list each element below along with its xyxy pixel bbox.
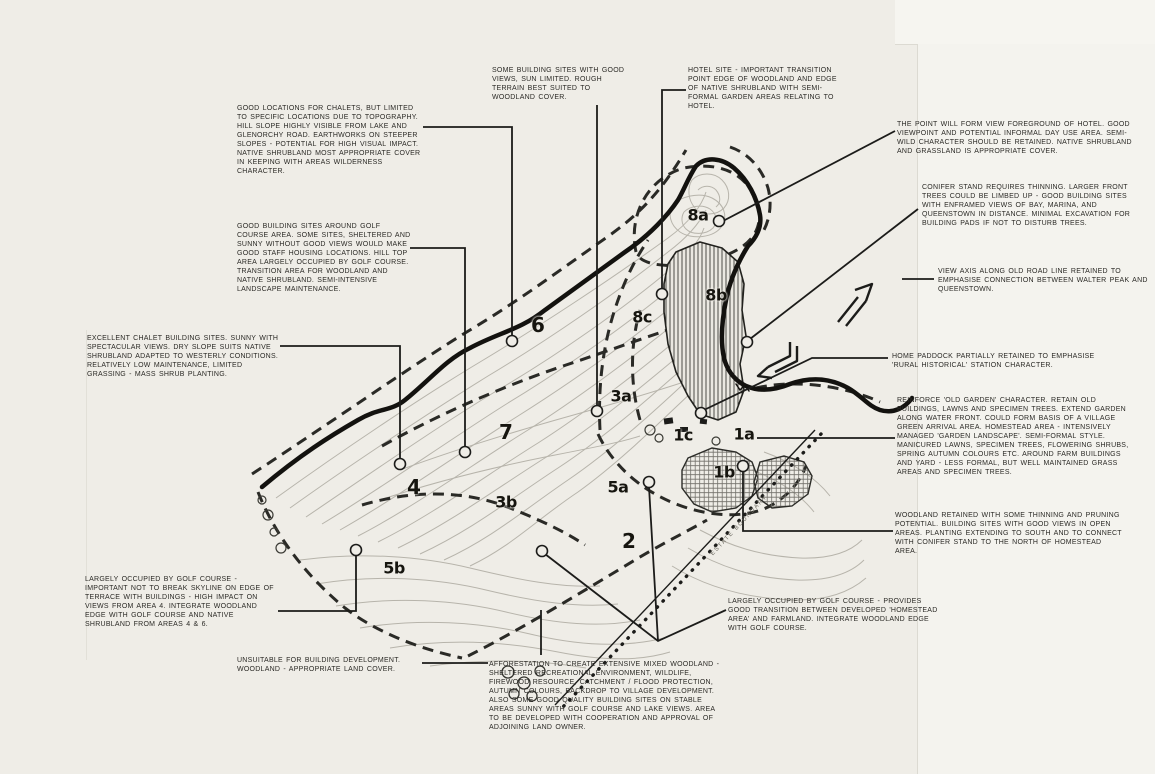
note-some-building-sites: SOME BUILDING SITES WITH GOOD VIEWS, SUN… [492,66,630,102]
zone-label-8a: 8a [688,206,709,225]
zone-label-7: 7 [499,420,513,444]
arrow-to-walter-peak [758,342,797,378]
zone-label-6: 6 [531,313,545,337]
note-golf-course-sites: GOOD BUILDING SITES AROUND GOLF COURSE A… [237,222,413,294]
note-golf-transition: LARGELY OCCUPIED BY GOLF COURSE - PROVID… [728,597,944,633]
map-drawing [0,0,1155,774]
note-view-axis: VIEW AXIS ALONG OLD ROAD LINE RETAINED T… [938,267,1150,294]
zone-label-1b: 1b [713,463,735,482]
note-excellent-chalet-sites: EXCELLENT CHALET BUILDING SITES. SUNNY W… [87,334,283,379]
note-afforestation: AFFORESTATION TO CREATE EXTENSIVE MIXED … [489,660,727,732]
note-unsuitable-woodland: UNSUITABLE FOR BUILDING DEVELOPMENT. WOO… [237,656,421,674]
zone-label-1c: 1c [673,426,693,445]
zone-label-8b: 8b [705,286,727,305]
note-hotel-site: HOTEL SITE - IMPORTANT TRANSITION POINT … [688,66,850,111]
zone-label-1a: 1a [734,425,755,444]
zone-label-3b: 3b [495,493,517,512]
zone-label-4: 4 [407,475,421,499]
zone-label-5b: 5b [383,559,405,578]
note-skyline-golf-course: LARGELY OCCUPIED BY GOLF COURSE - IMPORT… [85,575,281,629]
shore-scrub [258,496,286,553]
note-chalet-locations: GOOD LOCATIONS FOR CHALETS, BUT LIMITED … [237,104,423,176]
zone-label-5a: 5a [608,478,629,497]
note-the-point: THE POINT WILL FORM VIEW FOREGROUND OF H… [897,120,1135,156]
zone-label-2: 2 [622,529,636,553]
site-analysis-plan: 6 7 4 2 3a 3b 5a 5b 8a 8b 8c 1a 1b 1c ES… [0,0,1155,774]
note-home-paddock: HOME PADDOCK PARTIALLY RETAINED TO EMPHA… [892,352,1122,370]
zone-label-8c: 8c [632,308,652,327]
zone-label-3a: 3a [611,387,632,406]
note-old-garden-homestead: REINFORCE 'OLD GARDEN' CHARACTER. RETAIN… [897,396,1139,477]
note-conifer-stand: CONIFER STAND REQUIRES THINNING. LARGER … [922,183,1144,228]
note-woodland-retained: WOODLAND RETAINED WITH SOME THINNING AND… [895,511,1123,556]
arrow-to-queenstown [838,284,872,326]
view-axis-arrows [758,284,872,378]
